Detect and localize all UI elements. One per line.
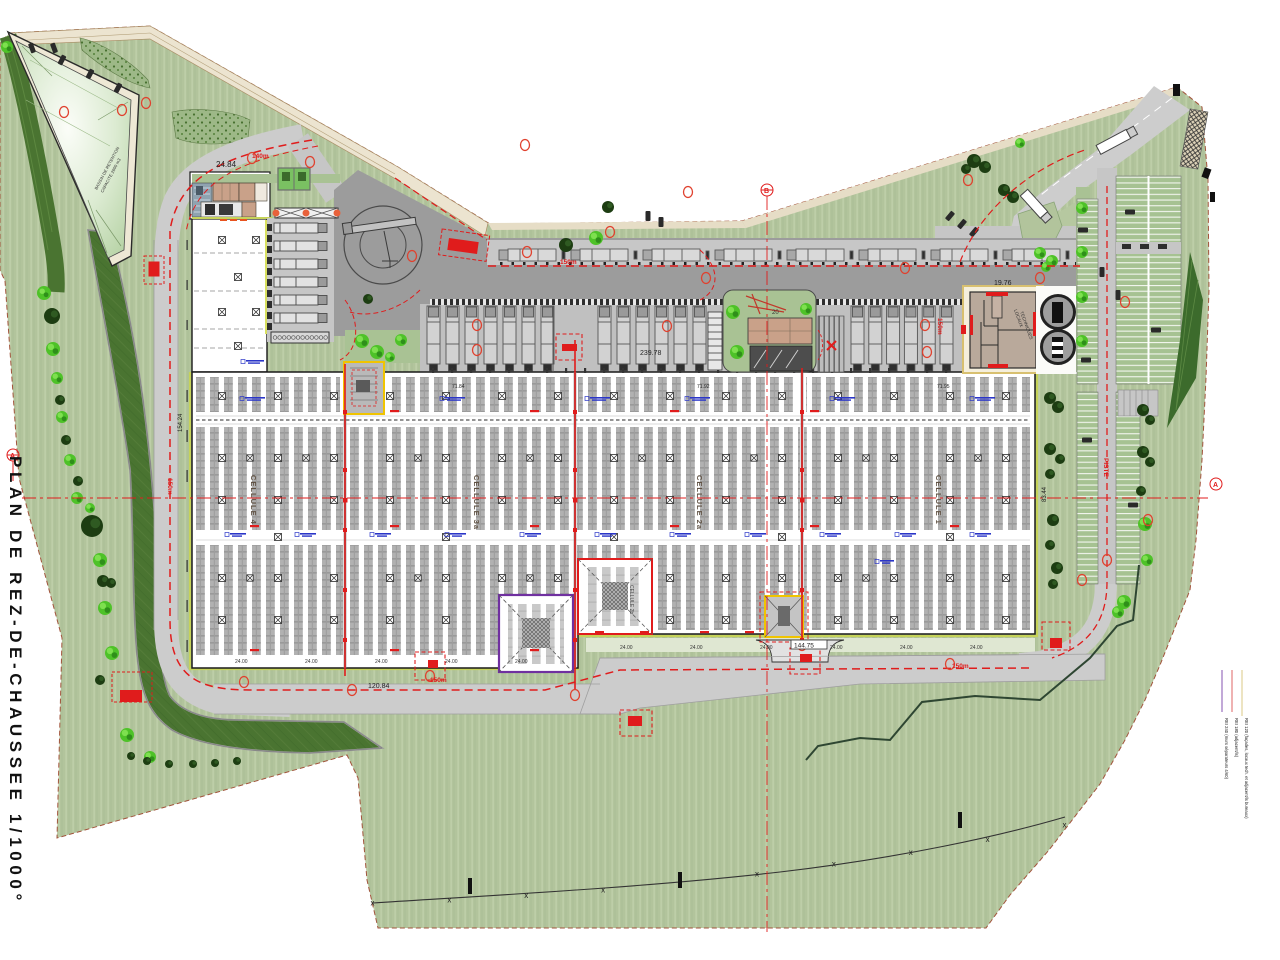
svg-text:x: x xyxy=(832,859,836,868)
svg-text:24.00: 24.00 xyxy=(620,645,633,651)
svg-text:B: B xyxy=(764,188,769,195)
svg-text:REI 120 (façades, locaux tech.: REI 120 (façades, locaux tech. et adjace… xyxy=(1244,718,1249,819)
svg-text:150m: 150m xyxy=(430,677,447,684)
svg-text:CELLULE 1: CELLULE 1 xyxy=(934,475,943,525)
svg-text:CELLULE 2a: CELLULE 2a xyxy=(695,475,704,530)
svg-text:24.00: 24.00 xyxy=(375,659,388,665)
svg-text:A: A xyxy=(1213,482,1218,489)
svg-text:24.00: 24.00 xyxy=(305,659,318,665)
svg-text:24.00: 24.00 xyxy=(830,645,843,651)
svg-text:19.76: 19.76 xyxy=(994,280,1012,287)
svg-text:CELLULE 3a: CELLULE 3a xyxy=(472,475,481,530)
svg-text:24.00: 24.00 xyxy=(690,645,703,651)
svg-text:71.84: 71.84 xyxy=(452,384,465,390)
svg-text:120.84: 120.84 xyxy=(368,683,390,690)
svg-text:71.92: 71.92 xyxy=(697,384,710,390)
svg-text:x: x xyxy=(447,896,451,905)
svg-text:150m: 150m xyxy=(952,663,969,670)
svg-text:REI 180 (adjacent/ls): REI 180 (adjacent/ls) xyxy=(1234,718,1239,758)
svg-text:24.00: 24.00 xyxy=(900,645,913,651)
svg-text:x: x xyxy=(1063,820,1067,829)
svg-text:239.78: 239.78 xyxy=(640,350,662,357)
svg-text:144.75: 144.75 xyxy=(794,643,814,650)
svg-text:CELLULE 4: CELLULE 4 xyxy=(249,475,258,525)
svg-text:x: x xyxy=(755,870,759,879)
svg-text:x: x xyxy=(986,835,990,844)
svg-text:24.00: 24.00 xyxy=(235,659,248,665)
svg-text:71.95: 71.95 xyxy=(937,384,950,390)
svg-text:x: x xyxy=(601,885,605,894)
svg-text:CELLULE 2b: CELLULE 2b xyxy=(628,585,634,614)
svg-text:140m: 140m xyxy=(252,153,269,160)
svg-text:24.00: 24.00 xyxy=(760,645,773,651)
svg-text:x: x xyxy=(909,848,913,857)
svg-text:x: x xyxy=(524,891,528,900)
svg-text:x: x xyxy=(371,899,375,908)
svg-text:150m: 150m xyxy=(936,318,943,335)
svg-text:24.00: 24.00 xyxy=(970,645,983,651)
svg-text:24.00: 24.00 xyxy=(445,659,458,665)
svg-text:83.44: 83.44 xyxy=(1042,486,1048,502)
svg-text:20: 20 xyxy=(772,310,779,316)
svg-text:24.00: 24.00 xyxy=(515,659,528,665)
svg-text:24.84: 24.84 xyxy=(216,160,237,169)
svg-text:150m: 150m xyxy=(166,478,173,495)
svg-text:PISTE: PISTE xyxy=(1102,458,1109,477)
svg-text:REI 240 (murs séparateurs 4/60: REI 240 (murs séparateurs 4/60) xyxy=(1224,718,1229,780)
svg-text:154.24: 154.24 xyxy=(178,413,184,432)
svg-text:PLAN DE REZ-DE-CHAUSSEE 1/1000: PLAN DE REZ-DE-CHAUSSEE 1/1000° xyxy=(6,456,25,905)
svg-text:150m: 150m xyxy=(560,259,577,266)
